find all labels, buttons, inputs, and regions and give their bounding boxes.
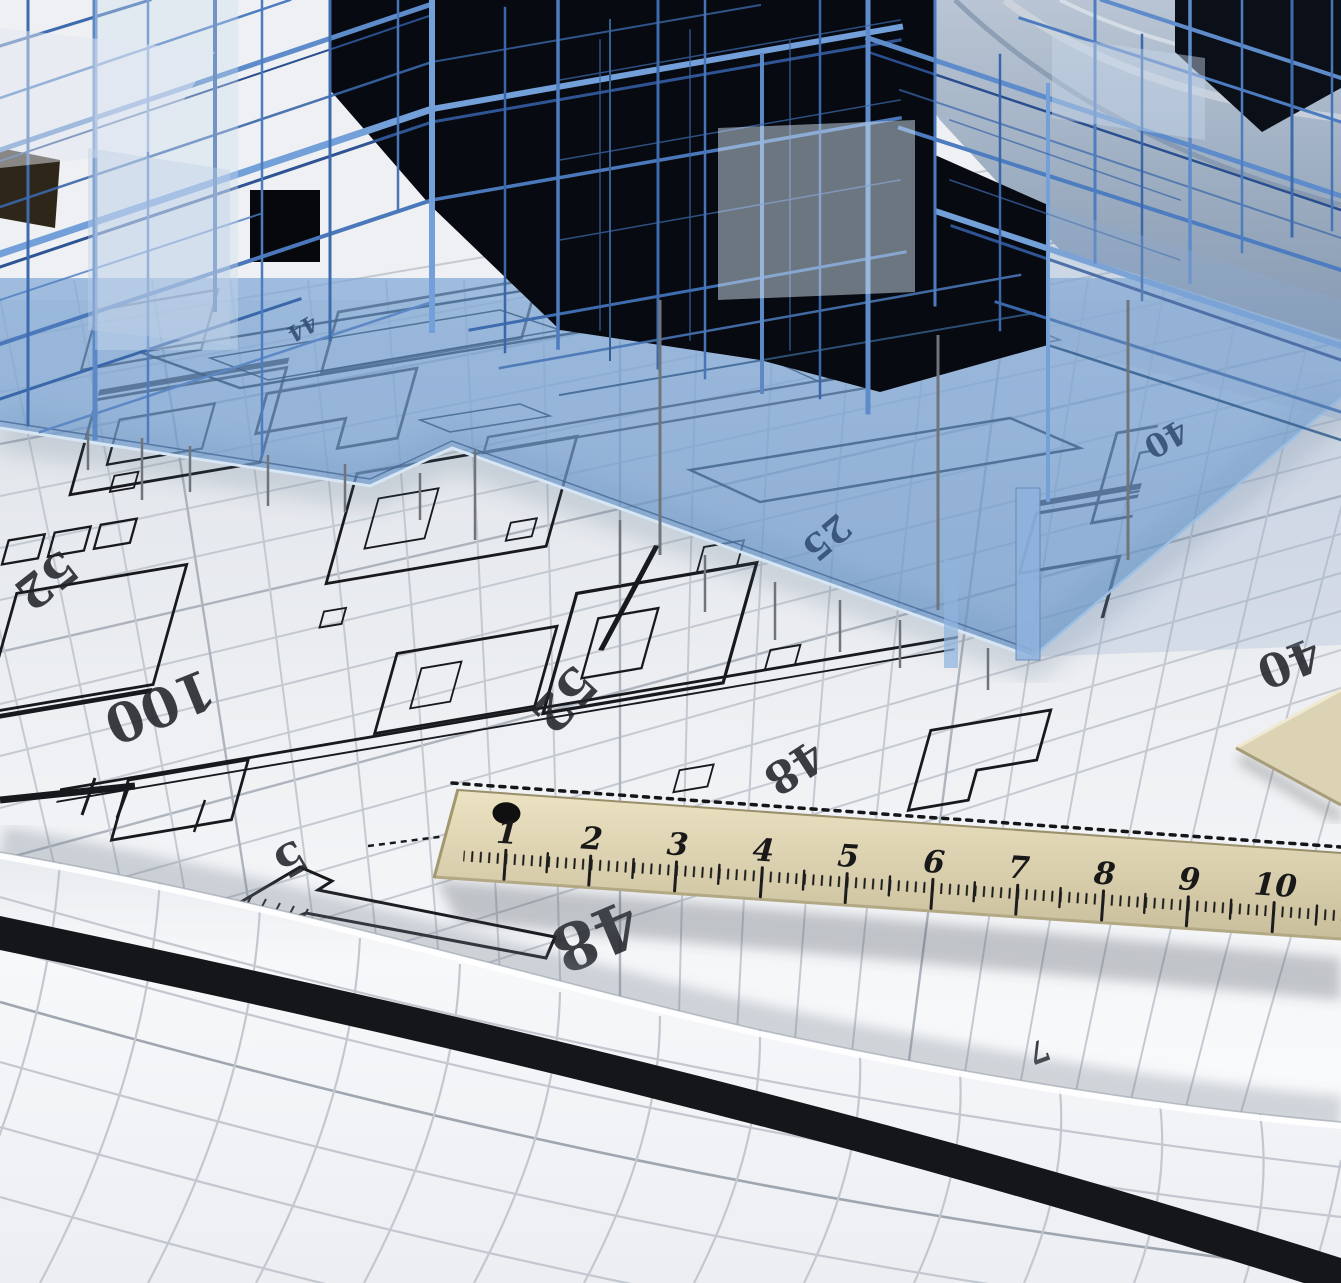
ruler-mark: 4 (752, 832, 776, 869)
ruler-mark: 9 (1178, 861, 1202, 898)
scene-svg: 52 100 52 48 40 48 5 7 25 40 44 (0, 0, 1341, 1283)
ruler-mark: 1 (495, 815, 519, 852)
blueprint-scene: 52 100 52 48 40 48 5 7 25 40 44 (0, 0, 1341, 1283)
ruler-mark: 10 (1253, 866, 1299, 905)
ruler-mark: 7 (1007, 850, 1031, 887)
glass-fin (944, 560, 958, 668)
ruler-mark: 6 (922, 844, 946, 881)
ruler-mark: 5 (836, 838, 860, 875)
ruler-mark: 8 (1092, 855, 1117, 892)
ruler-mark: 3 (666, 826, 690, 863)
glass-fin (1016, 488, 1040, 660)
ruler-mark: 2 (579, 820, 604, 857)
